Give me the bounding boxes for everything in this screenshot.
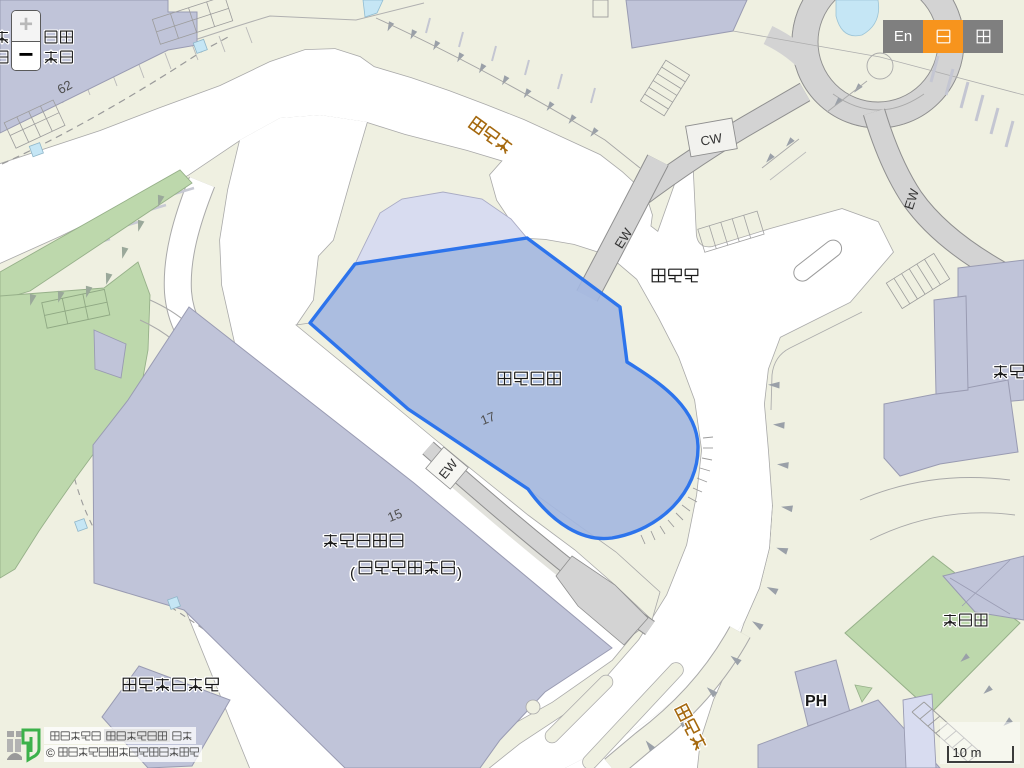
svg-text:): ) <box>457 565 462 582</box>
svg-text:©: © <box>46 746 55 760</box>
svg-text:10 m: 10 m <box>953 745 982 760</box>
svg-text:PH: PH <box>805 693 827 710</box>
svg-text:(: ( <box>350 565 355 582</box>
